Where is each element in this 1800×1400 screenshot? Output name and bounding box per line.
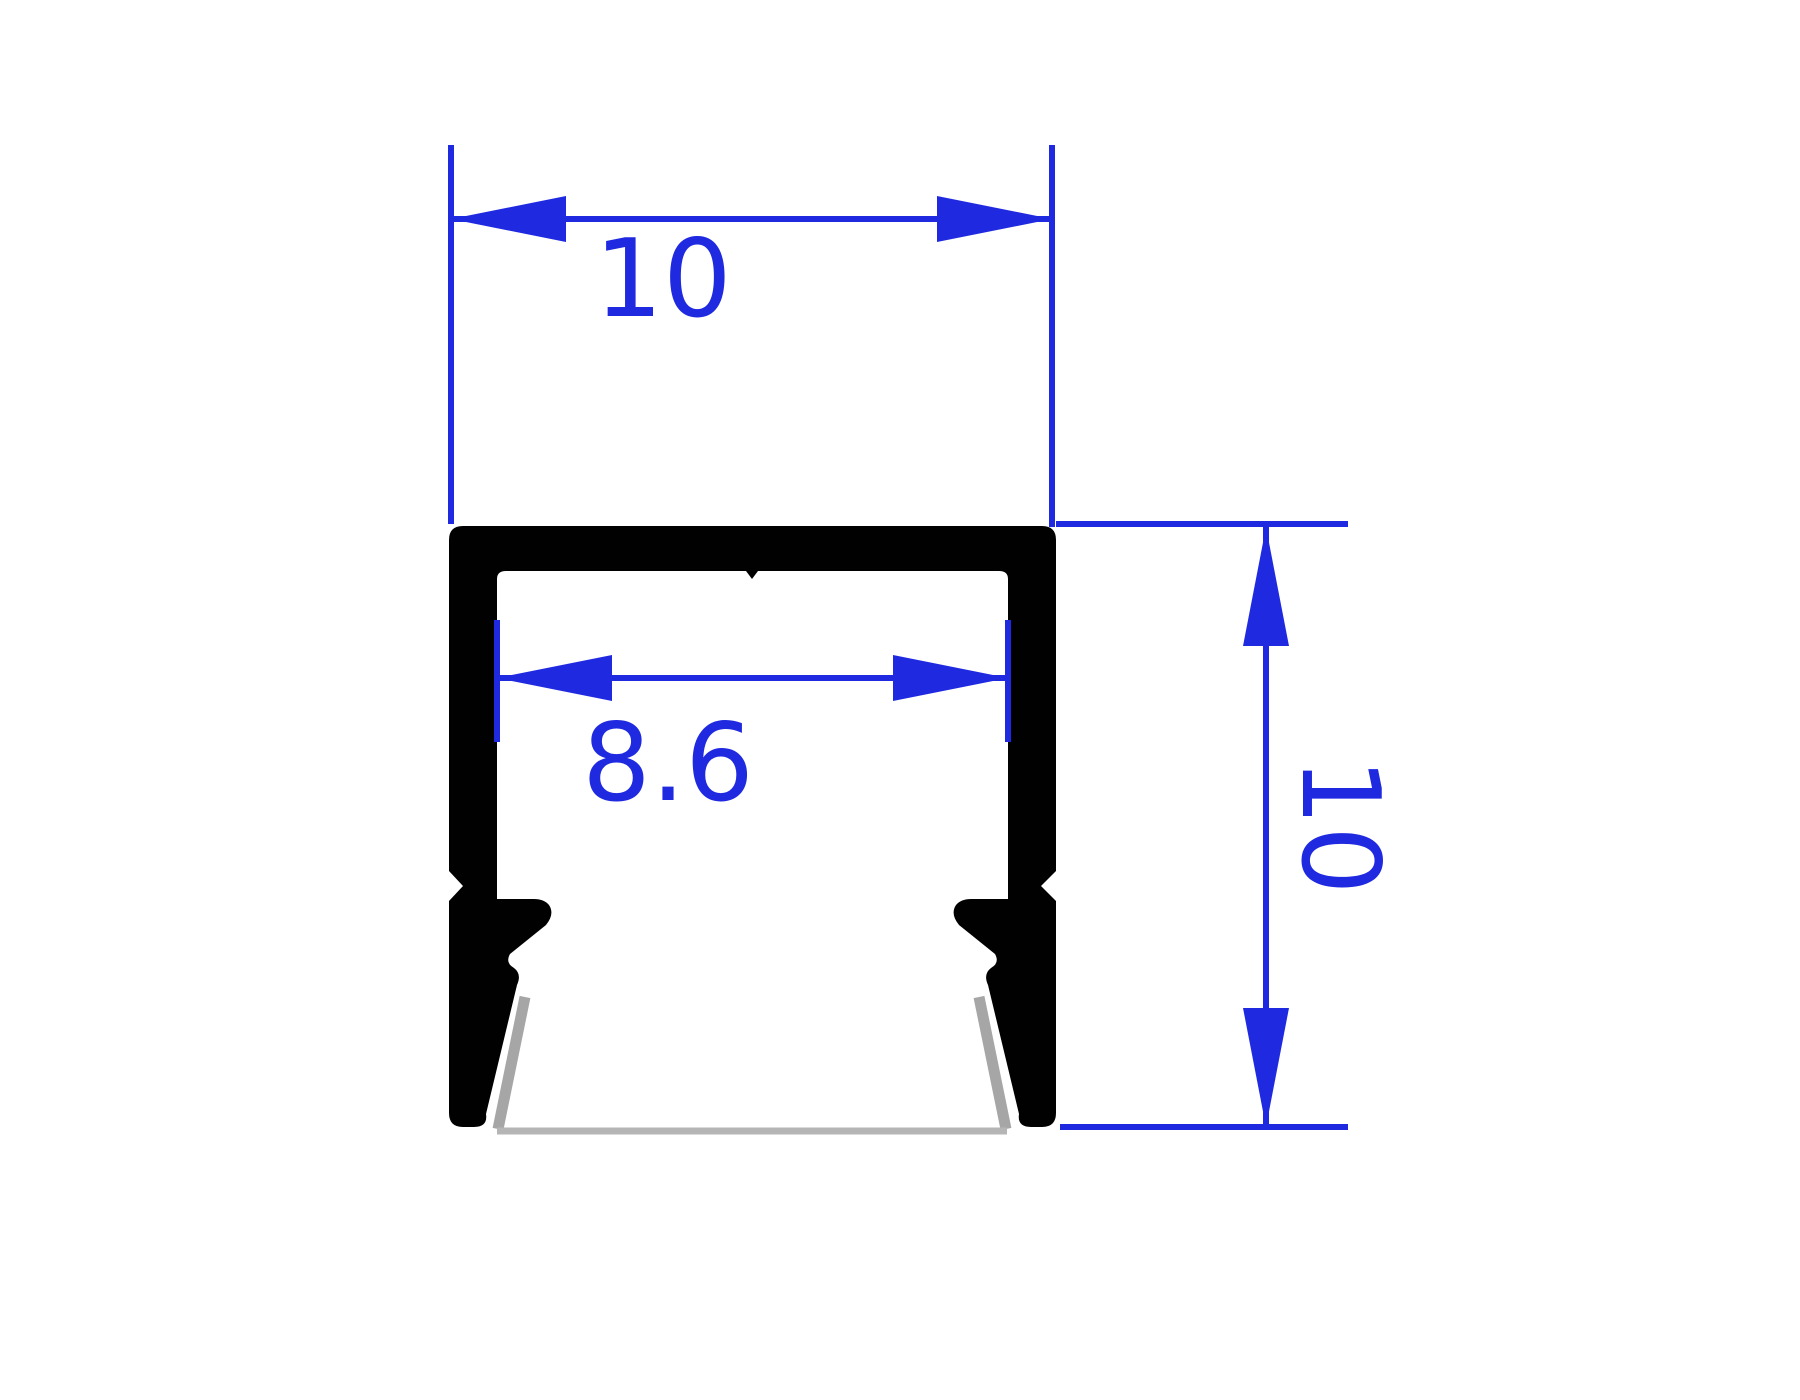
arrowhead-right-icon bbox=[937, 196, 1052, 242]
inner-width-label: 8.6 bbox=[582, 701, 754, 826]
arrowhead-right-icon bbox=[893, 655, 1008, 701]
arrowhead-left-icon bbox=[451, 196, 566, 242]
arrowhead-up-icon bbox=[1243, 527, 1289, 646]
outer-width-label: 10 bbox=[594, 217, 731, 342]
profile bbox=[449, 526, 1056, 1131]
profile-outline bbox=[449, 526, 1056, 1127]
inner-width-dimension: 8.6 bbox=[497, 620, 1008, 826]
drawing-canvas: 10 8.6 10 bbox=[0, 0, 1800, 1400]
arrowhead-left-icon bbox=[497, 655, 612, 701]
outer-height-label: 10 bbox=[1277, 757, 1402, 894]
outer-width-dimension: 10 bbox=[451, 145, 1052, 527]
profile-dimension-drawing: 10 8.6 10 bbox=[0, 0, 1800, 1400]
outer-height-dimension: 10 bbox=[1056, 524, 1402, 1127]
arrowhead-down-icon bbox=[1243, 1008, 1289, 1127]
